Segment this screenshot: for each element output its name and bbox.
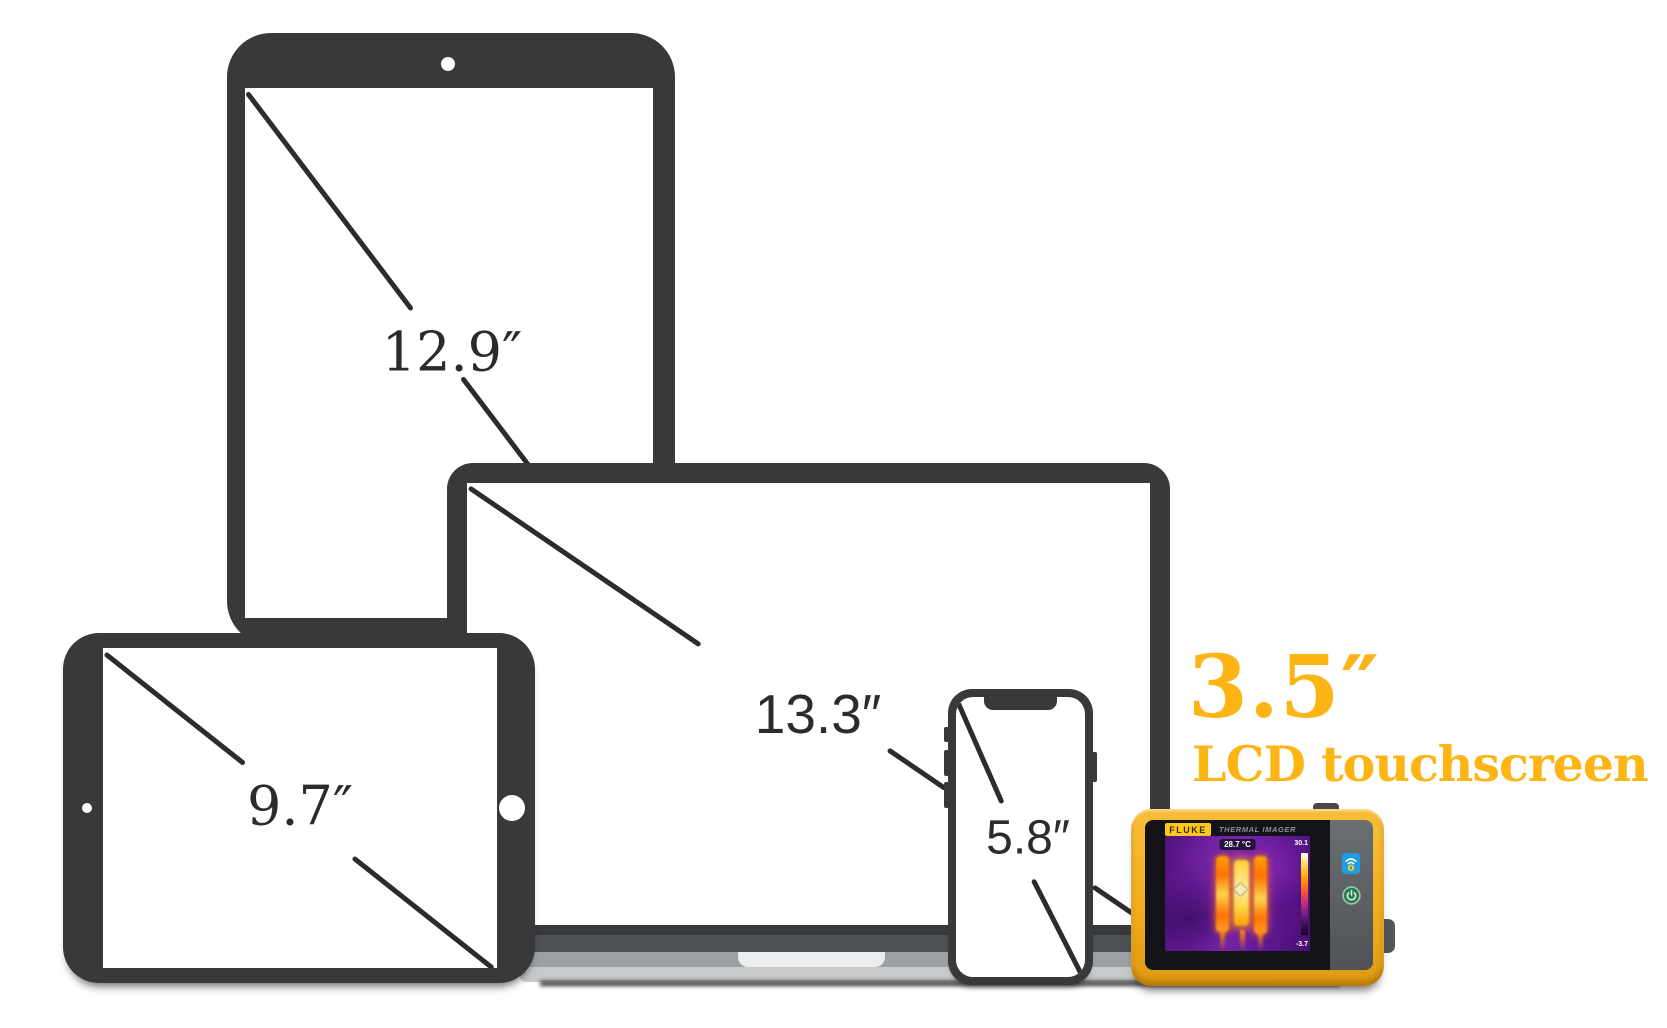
tablet-9-7-screen: 9.7″ xyxy=(103,648,497,968)
lid-notch xyxy=(738,952,885,967)
button-panel xyxy=(1330,820,1373,970)
hot-object xyxy=(1216,856,1229,932)
fluke-logo: FLUKE xyxy=(1165,823,1211,836)
size-label-12-9: 12.9″ xyxy=(382,321,522,384)
hot-object-tail xyxy=(1240,930,1245,951)
diagonal-line-segment xyxy=(245,91,414,311)
diagonal-line-segment xyxy=(460,376,532,469)
diagonal-line-segment xyxy=(351,856,494,968)
home-button-icon xyxy=(499,795,525,821)
front-camera-icon xyxy=(82,803,92,813)
side-power-button xyxy=(1092,752,1097,782)
thermal-imager-body: FLUKE THERMAL IMAGER 28.7 °C 30.1 -3.7 xyxy=(1131,809,1384,986)
diagonal-line-segment xyxy=(887,747,948,791)
mute-switch-icon xyxy=(944,727,949,742)
headline-subtitle: LCD touchscreen xyxy=(1192,740,1648,789)
size-label-13-3: 13.3″ xyxy=(755,682,882,746)
diagonal-line-segment xyxy=(1031,878,1084,976)
thermal-imager-device: FLUKE THERMAL IMAGER 28.7 °C 30.1 -3.7 xyxy=(1131,803,1405,995)
size-label-9-7: 9.7″ xyxy=(247,775,353,838)
tablet-9-7: 9.7″ xyxy=(63,633,535,983)
temperature-scale-bar xyxy=(1301,853,1308,935)
phone-screen: 5.8″ xyxy=(956,697,1085,977)
headline-screen-size: 3.5″ xyxy=(1188,645,1380,731)
spot-temperature-badge: 28.7 °C xyxy=(1219,839,1256,850)
hot-object xyxy=(1254,856,1267,934)
front-camera-icon xyxy=(441,57,455,71)
phone-5-8: 5.8″ xyxy=(948,689,1093,985)
power-button xyxy=(1342,886,1361,910)
screen-size-comparison-infographic: 12.9″ 13.3″ 9.7″ 5.8″ xyxy=(0,0,1667,1028)
thermal-display: 28.7 °C 30.1 -3.7 xyxy=(1165,836,1310,951)
front-panel: FLUKE THERMAL IMAGER 28.7 °C 30.1 -3.7 xyxy=(1145,820,1330,970)
volume-up-button xyxy=(944,750,949,776)
volume-down-button xyxy=(944,782,949,808)
hot-object-tail xyxy=(1220,930,1225,951)
scale-min-label: -3.7 xyxy=(1296,941,1308,948)
phone-notch xyxy=(984,697,1057,710)
diagonal-line-segment xyxy=(956,701,1005,804)
diagonal-line-segment xyxy=(103,652,246,766)
hot-object-tail xyxy=(1258,930,1263,951)
scale-max-label: 30.1 xyxy=(1294,840,1308,847)
diagonal-line-segment xyxy=(468,485,702,647)
fluke-connect-wifi-button xyxy=(1342,853,1360,879)
size-label-5-8: 5.8″ xyxy=(986,811,1070,866)
product-label: THERMAL IMAGER xyxy=(1219,825,1296,834)
